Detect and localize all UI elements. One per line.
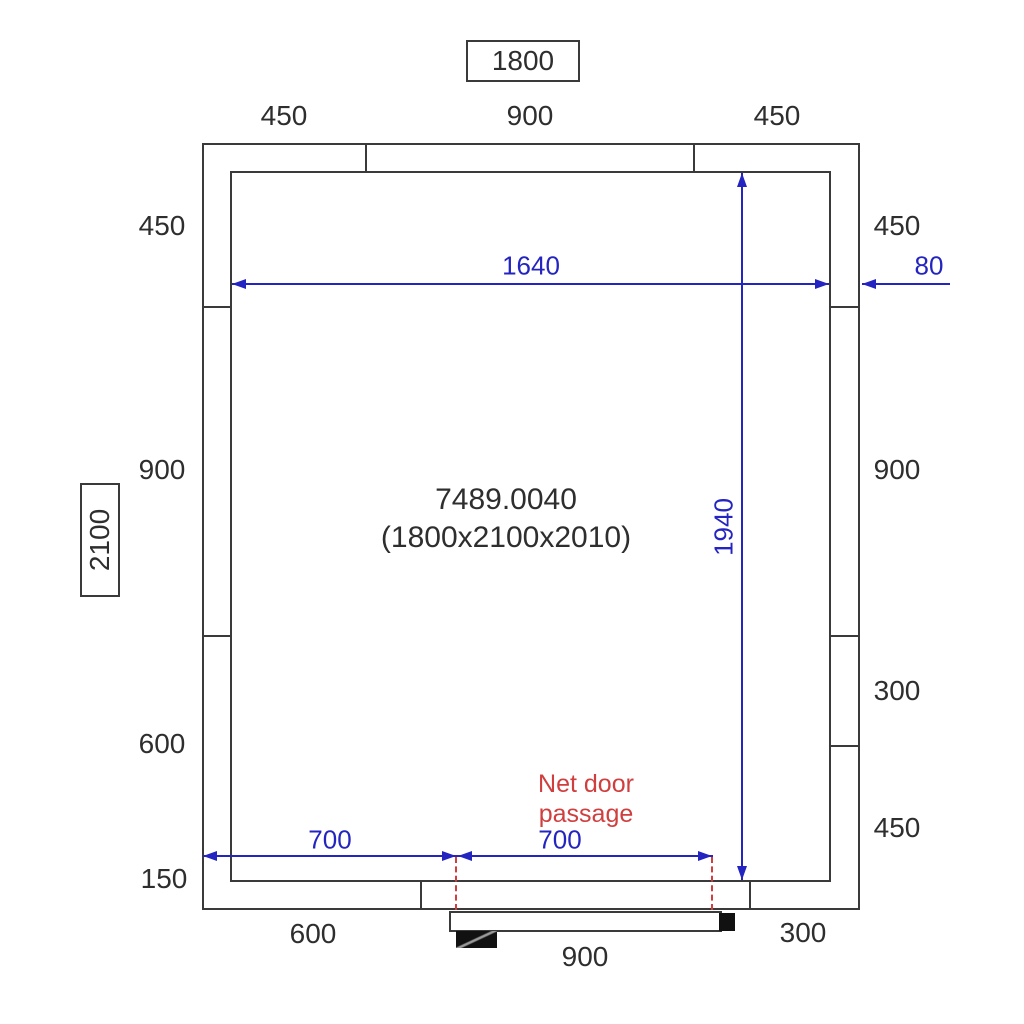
net-passage-dashed-right	[711, 857, 713, 910]
dim-line-clear-width	[232, 283, 829, 285]
arrowhead-door-chain-far-right	[698, 851, 712, 861]
panel-joint-tick-right-2	[831, 635, 858, 637]
net-door-passage-note-line1: Net door	[538, 769, 634, 799]
panel-joint-tick-left-2	[203, 635, 230, 637]
panel-joint-tick-top-1	[365, 143, 367, 171]
floor-plan-canvas: 1800 2100 450 900 450 450 900 600 150 45…	[0, 0, 1024, 1024]
dim-label-wall-thickness: 80	[915, 251, 944, 282]
arrowhead-clear-width-right	[815, 279, 829, 289]
overall-height-box: 2100	[80, 483, 120, 597]
arrowhead-clear-height-top	[737, 173, 747, 187]
door-leaf	[449, 911, 722, 932]
panel-dim-right-4: 450	[874, 812, 921, 844]
panel-dim-top-1: 450	[261, 100, 308, 132]
panel-joint-tick-right-1	[831, 306, 858, 308]
arrowhead-clear-height-bottom	[737, 866, 747, 880]
panel-dim-left-1: 450	[139, 210, 186, 242]
dim-label-door-offset: 700	[308, 825, 351, 856]
arrowhead-door-chain-mid-right	[442, 851, 456, 861]
panel-dim-left-3: 600	[139, 728, 186, 760]
arrowhead-door-chain-far-left	[203, 851, 217, 861]
dim-label-door-passage: 700	[538, 825, 581, 856]
dim-label-clear-height: 1940	[709, 498, 740, 556]
overall-width-box: 1800	[466, 40, 580, 82]
arrowhead-wall-thickness	[862, 279, 876, 289]
door-hinge	[719, 913, 735, 931]
product-code: 7489.0040	[435, 483, 577, 517]
net-passage-dashed-left	[455, 857, 457, 910]
dim-label-clear-width: 1640	[502, 251, 560, 282]
panel-joint-tick-left-1	[203, 306, 230, 308]
panel-dim-bottom-3: 300	[780, 917, 827, 949]
panel-joint-tick-right-3	[831, 745, 858, 747]
panel-joint-tick-bottom-1	[420, 882, 422, 908]
panel-dim-right-1: 450	[874, 210, 921, 242]
panel-dim-bottom-1: 600	[290, 918, 337, 950]
panel-joint-tick-top-2	[693, 143, 695, 171]
panel-dim-bottom-2: 900	[562, 941, 609, 973]
overall-height-label: 2100	[84, 509, 116, 571]
net-door-passage-note: Net door passage	[538, 769, 634, 829]
arrowhead-clear-width-left	[232, 279, 246, 289]
panel-joint-tick-bottom-2	[749, 882, 751, 908]
panel-dim-right-3: 300	[874, 675, 921, 707]
arrowhead-door-chain-mid-left	[458, 851, 472, 861]
door-handle	[456, 931, 497, 948]
panel-dim-top-3: 450	[754, 100, 801, 132]
panel-dim-left-4: 150	[141, 863, 188, 895]
panel-dim-left-2: 900	[139, 454, 186, 486]
dim-line-clear-height	[741, 173, 743, 880]
panel-dim-right-2: 900	[874, 454, 921, 486]
net-door-passage-note-line2: passage	[538, 799, 634, 829]
product-dimensions: (1800x2100x2010)	[381, 521, 631, 555]
panel-dim-top-2: 900	[507, 100, 554, 132]
